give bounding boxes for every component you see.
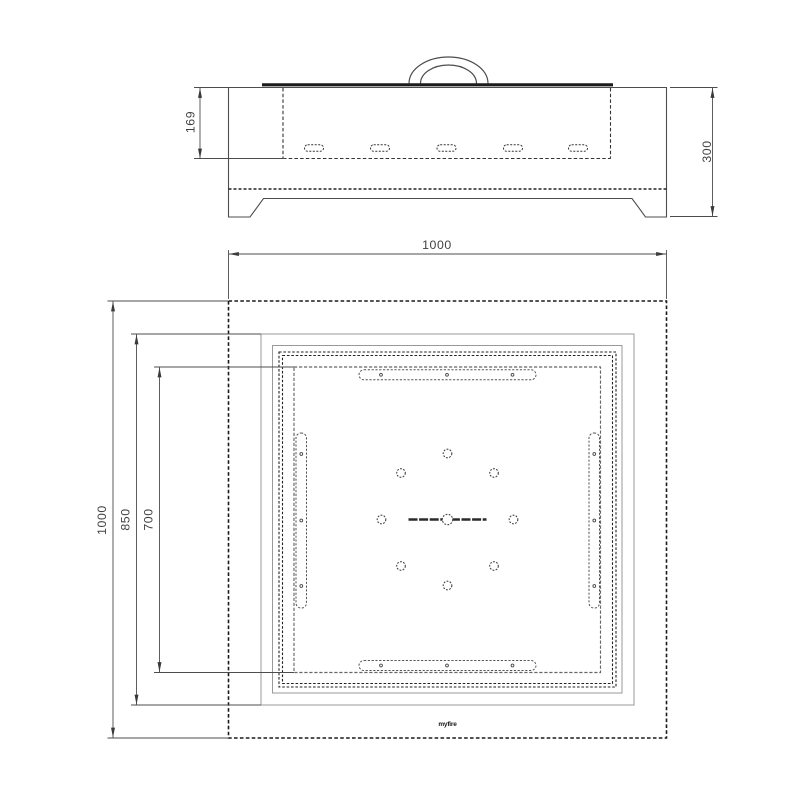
slot-pin bbox=[380, 664, 383, 667]
burner-hole bbox=[490, 562, 499, 571]
dim-1000-top-label: 1000 bbox=[422, 238, 452, 252]
dim-850-label: 850 bbox=[118, 508, 132, 530]
slot-pin bbox=[300, 519, 303, 522]
burner-hole bbox=[397, 562, 406, 571]
mount-slot-top bbox=[359, 370, 536, 380]
dimension-1000-top bbox=[229, 250, 667, 299]
side-elevation-view: 169 300 bbox=[183, 57, 717, 217]
drawing-svg: 169 300 bbox=[0, 0, 800, 800]
slot-pin bbox=[446, 373, 449, 376]
slot-pin bbox=[593, 453, 596, 456]
dim-169-label: 169 bbox=[183, 111, 197, 133]
slot-pin bbox=[300, 585, 303, 588]
burner-hole bbox=[397, 469, 406, 478]
slot-pin bbox=[380, 373, 383, 376]
mount-slot-left bbox=[296, 433, 307, 608]
burner-hole bbox=[443, 449, 452, 458]
slot-pin bbox=[446, 664, 449, 667]
slot-pin bbox=[511, 373, 514, 376]
dim-300-label: 300 bbox=[700, 140, 714, 162]
burner-hole bbox=[509, 515, 518, 524]
slot-pin bbox=[300, 453, 303, 456]
dim-1000-left-label: 1000 bbox=[95, 505, 109, 535]
technical-drawing-canvas: 169 300 bbox=[0, 0, 800, 800]
burner-hole bbox=[443, 581, 452, 590]
body-outline bbox=[229, 88, 667, 218]
mount-slot-bottom bbox=[359, 661, 536, 671]
slot-pin bbox=[593, 585, 596, 588]
plan-view: myfire 1000 1000 850 700 bbox=[95, 238, 667, 738]
center-orifice bbox=[442, 514, 452, 524]
dim-700-label: 700 bbox=[141, 508, 155, 530]
brand-logo: myfire bbox=[438, 721, 457, 728]
burner-hole bbox=[377, 515, 386, 524]
handle-inner-arc-icon bbox=[421, 65, 477, 84]
slot-pin bbox=[593, 519, 596, 522]
burner-hole bbox=[490, 469, 499, 478]
mount-slot-right bbox=[589, 433, 600, 608]
slot-pin bbox=[511, 664, 514, 667]
